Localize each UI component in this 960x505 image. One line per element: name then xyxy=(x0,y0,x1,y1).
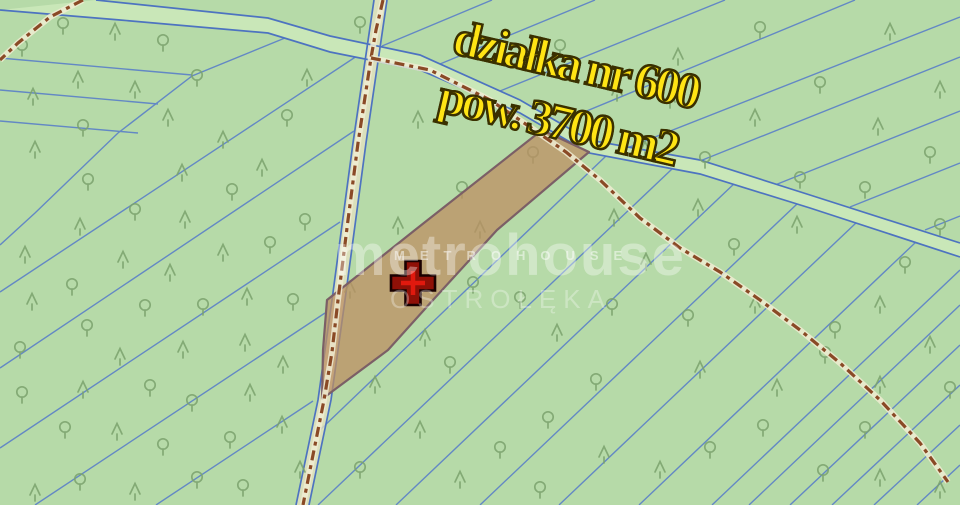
cadastral-map-layer xyxy=(0,0,960,505)
map-ground xyxy=(0,0,960,505)
map-canvas[interactable]: metrohouse METROHOUSE OSTROŁĘKA działka … xyxy=(0,0,960,505)
